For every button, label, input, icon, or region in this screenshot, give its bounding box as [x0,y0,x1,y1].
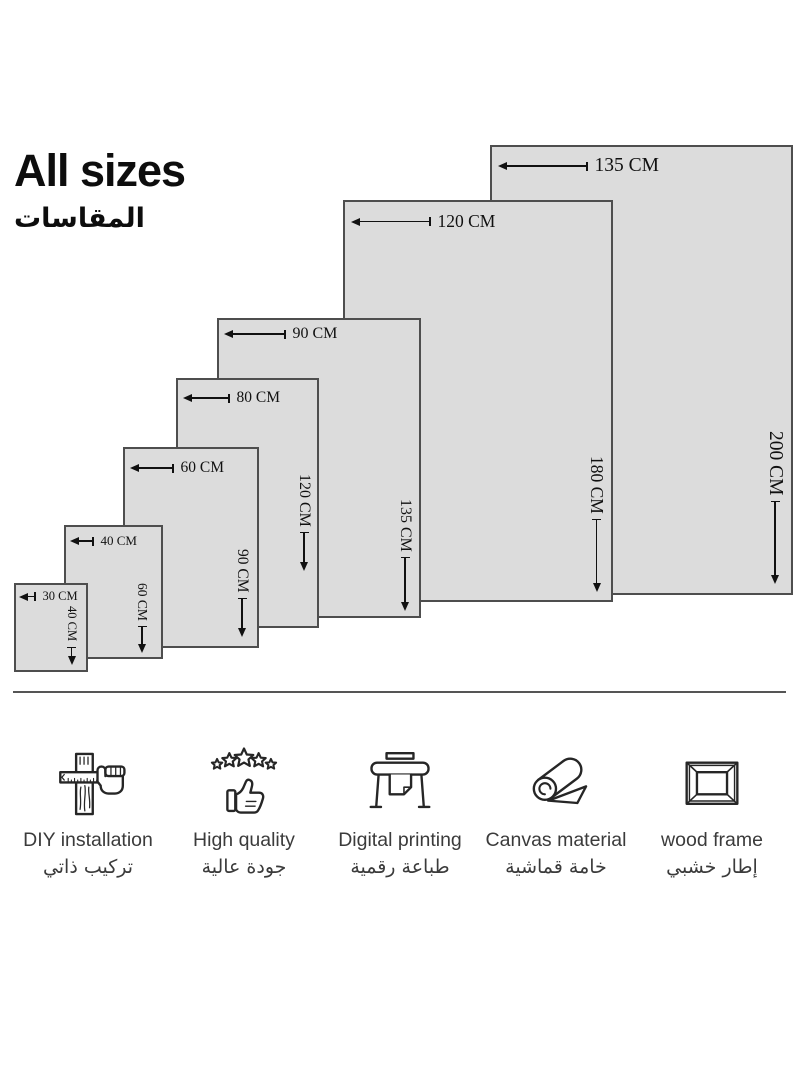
feature-canvas-material: Canvas material خامة قماشية [480,746,632,878]
width-dimension-label: 90 CM [224,325,337,343]
feature-label-ar: جودة عالية [202,856,287,878]
size-guide-infographic: All sizes المقاسات 135 CM 200 CM 120 CM … [0,0,800,1091]
width-value: 135 CM [595,155,659,177]
height-dimension-label: 180 CM [586,456,607,592]
height-dimension-label: 120 CM [295,474,313,571]
canvas-material-icon [518,746,594,822]
down-arrow-icon [771,501,780,585]
feature-label-en: High quality [193,830,295,851]
height-value: 200 CM [764,431,786,495]
height-value: 40 CM [64,606,79,641]
digital-printing-icon [362,746,438,822]
width-value: 90 CM [293,325,338,343]
down-arrow-icon [238,598,247,638]
width-value: 40 CM [101,533,137,549]
features-row: DIY installation تركيب ذاتي High quality… [12,746,788,878]
page-title: All sizes [14,148,185,193]
left-arrow-icon [130,464,174,473]
feature-label-ar: طباعة رقمية [350,856,449,878]
page-title-arabic: المقاسات [14,203,185,234]
height-value: 90 CM [233,549,251,593]
width-dimension-label: 135 CM [498,155,659,177]
width-dimension-label: 40 CM [70,533,137,549]
height-dimension-label: 200 CM [764,431,786,584]
height-dimension-label: 60 CM [134,583,150,653]
wood-frame-icon [674,746,750,822]
divider [13,691,786,693]
feature-label-en: Digital printing [338,830,462,851]
left-arrow-icon [183,394,230,403]
title-block: All sizes المقاسات [14,148,185,234]
feature-label-en: DIY installation [23,830,153,851]
feature-label-ar: خامة قماشية [505,856,607,878]
left-arrow-icon [351,217,431,226]
feature-label-ar: إطار خشبي [666,856,758,878]
feature-label-ar: تركيب ذاتي [43,856,133,878]
height-value: 135 CM [396,499,414,552]
left-arrow-icon [70,537,94,546]
left-arrow-icon [498,162,588,171]
left-arrow-icon [224,330,286,339]
width-value: 30 CM [43,589,78,604]
feature-label-en: wood frame [661,830,763,851]
down-arrow-icon [592,519,601,593]
down-arrow-icon [401,557,410,612]
down-arrow-icon [300,532,309,572]
feature-wood-frame: wood frame إطار خشبي [636,746,788,878]
high-quality-icon [206,746,282,822]
height-value: 180 CM [586,456,607,514]
diy-installation-icon [50,746,126,822]
left-arrow-icon [19,592,36,601]
height-value: 60 CM [134,583,150,621]
width-dimension-label: 30 CM [19,589,78,604]
feature-label-en: Canvas material [486,830,627,851]
width-dimension-label: 60 CM [130,459,224,477]
down-arrow-icon [138,626,147,654]
size-rect-30x40: 30 CM 40 CM [14,583,88,672]
width-value: 80 CM [237,389,281,407]
feature-digital-printing: Digital printing طباعة رقمية [324,746,476,878]
height-dimension-label: 90 CM [233,549,251,637]
down-arrow-icon [67,647,76,666]
width-value: 120 CM [438,211,496,232]
feature-high-quality: High quality جودة عالية [168,746,320,878]
width-dimension-label: 80 CM [183,389,280,407]
feature-diy-installation: DIY installation تركيب ذاتي [12,746,164,878]
height-dimension-label: 135 CM [396,499,414,611]
height-dimension-label: 40 CM [64,606,79,665]
height-value: 120 CM [295,474,313,527]
width-dimension-label: 120 CM [351,211,495,232]
width-value: 60 CM [181,459,225,477]
